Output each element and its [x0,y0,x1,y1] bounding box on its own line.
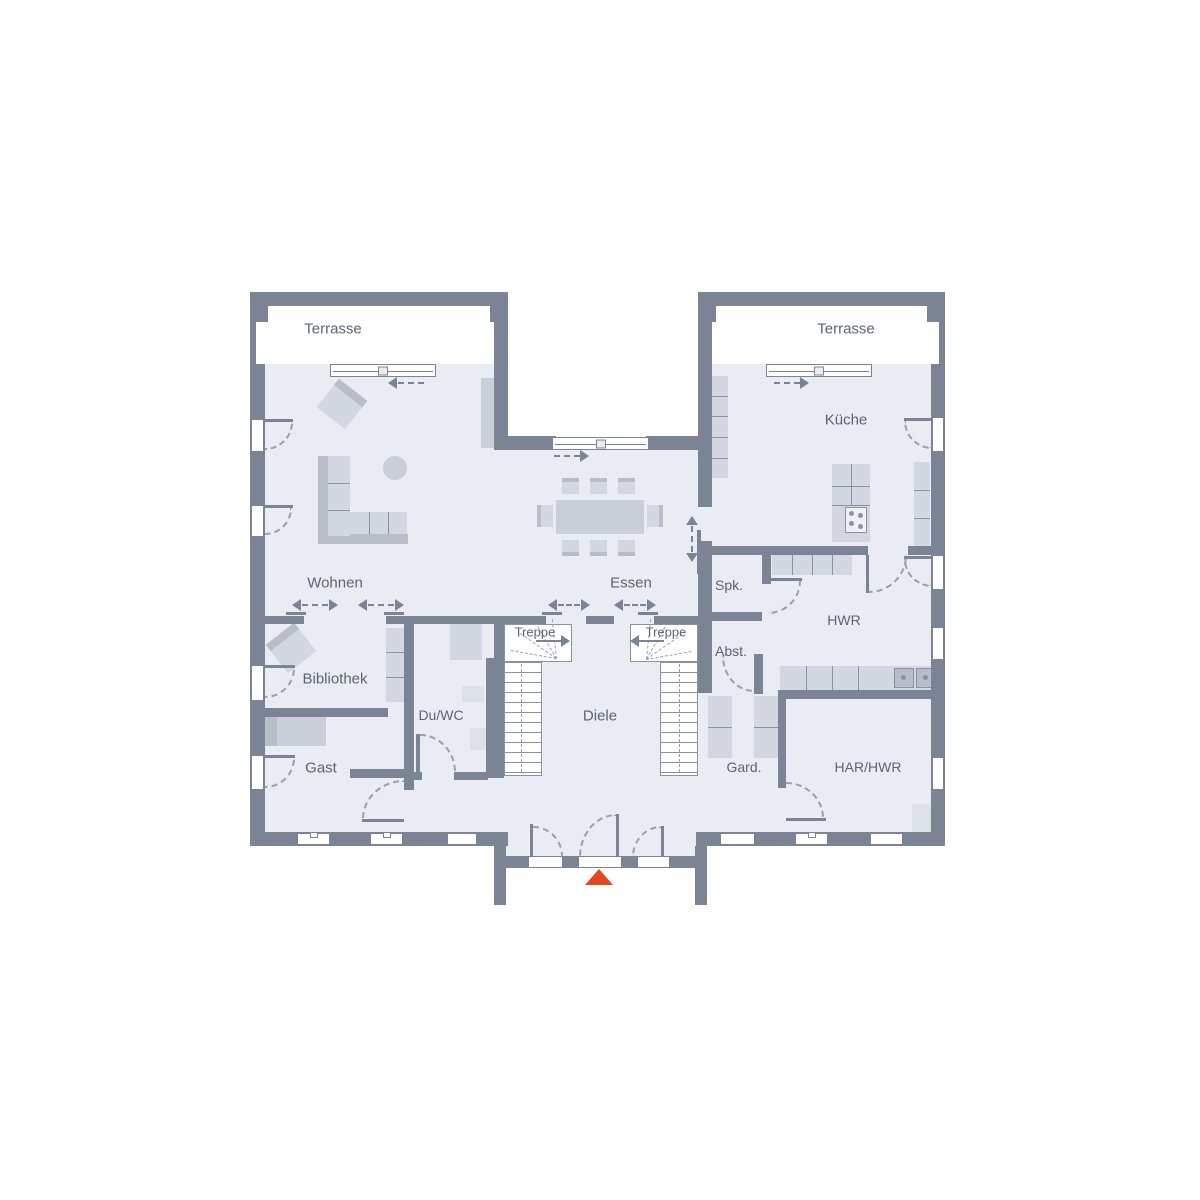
french-door [251,755,264,790]
entrance-marker-icon [585,869,613,885]
wall-porch [695,846,707,905]
sliding-door-leaf [638,612,658,615]
door-leaf [661,826,664,857]
cabinet-line [710,437,728,438]
room-label-living: Wohnen [307,575,363,592]
sofa [328,456,350,536]
sliding-door-arrow-icon [548,599,557,611]
exterior-door [932,417,944,452]
window [447,833,477,845]
sliding-door-dash [302,604,328,606]
stair-direction-line [536,640,562,642]
sliding-door-arrow-icon [292,599,301,611]
stair-direction-arrow-icon [630,635,639,647]
room-label-wardrobe: Gard. [726,759,761,775]
door-leaf [786,818,826,821]
sliding-door-arrow-icon [395,599,404,611]
slide-direction-dash [774,382,800,384]
wall-porch [494,846,506,905]
room-label-storage: Abst. [715,643,747,659]
chair [590,540,607,556]
slide-direction-dash [554,455,580,457]
window-vent-icon [808,832,816,838]
exterior-door [932,555,944,590]
bookshelf [386,628,404,702]
appliance-dot [901,675,906,680]
sofa-cushion-line [328,510,350,511]
sofa-backrest [318,456,328,544]
slide-direction-arrow-icon [580,450,589,462]
room-label-pantry: Spk. [715,577,743,593]
stair-direction-line [638,640,664,642]
burner-icon [858,513,863,518]
island-line [832,486,870,487]
wall [698,292,945,306]
sofa-cushion-line [369,512,370,534]
room-label-guest: Gast [305,760,337,777]
sliding-door-arrow-icon [647,599,656,611]
coffee-table [383,456,407,480]
chair [537,505,553,527]
entrance-door-main [578,856,622,868]
counter-line [812,555,813,575]
island-line [832,505,870,506]
chair [562,540,579,556]
wall [654,616,700,624]
wall [586,616,614,624]
cabinet-line [710,458,728,459]
wall [698,292,712,507]
french-door [251,665,264,701]
sliding-door-arrow-icon [329,599,338,611]
kitchen-cabinets [710,376,728,478]
room-label-dining: Essen [610,575,652,592]
slider-handle-icon [378,366,388,375]
burner-icon [858,524,863,529]
window-vent-icon [310,832,318,838]
appliance-dot [923,675,928,680]
sofa-cushion-line [388,512,389,534]
sliding-door-leaf [697,530,701,574]
room-label-stair-right: Treppe [646,625,687,640]
room-label-terrace-left: Terrasse [304,321,362,338]
room-label-kitchen: Küche [825,412,868,429]
door-leaf [362,819,404,822]
cabinet-line [708,727,732,728]
chair [647,505,663,527]
wall [252,616,304,624]
wall [250,292,256,368]
dining-table [556,500,644,534]
slider-handle-icon [814,366,824,375]
sliding-door-dash [691,526,693,552]
sliding-door-arrow-icon [614,599,623,611]
kitchen-tall-cabinet [914,462,930,546]
chair [618,478,635,494]
entrance-door [528,856,563,868]
window [720,833,755,845]
wall [778,690,786,788]
window [795,833,828,845]
chair [618,540,635,556]
sideboard [481,378,495,448]
island-line [851,464,852,506]
stair-walkline [521,664,522,772]
room-label-utility: HWR [827,612,860,628]
room-label-library: Bibliothek [302,671,367,688]
counter-line [832,555,833,575]
bath-cabinet [450,624,482,660]
washbasin [462,686,484,702]
counter-line [858,666,859,690]
stair-left-run [504,662,542,776]
wall [250,292,508,306]
sliding-terrace-door [330,364,436,377]
slide-direction-arrow-icon [388,377,397,389]
wall-entrance [563,856,578,868]
counter-line [792,555,793,575]
room-label-shower-wc: Du/WC [418,707,463,723]
wall [782,690,945,699]
cabinet-line [710,396,728,397]
cooktop [845,507,867,533]
shelf-line [386,677,404,678]
sliding-door-dash [624,604,646,606]
french-door [251,419,264,452]
window-vent-icon [383,832,391,838]
cabinet-line [710,416,728,417]
bed-pillow [264,716,277,746]
wall [350,769,404,778]
room-label-stair-left: Treppe [515,625,556,640]
wall-entrance [670,856,696,868]
wall [494,616,504,778]
stair-walkline [679,664,680,772]
sofa-cushion-line [328,483,350,484]
wall [939,292,945,368]
wall [404,616,414,790]
floor-plan: Terrasse Terrasse Wohnen Essen Küche Spk… [0,0,1200,1200]
slider-handle-icon [596,439,606,448]
wall [404,772,422,780]
sliding-terrace-door [552,437,649,450]
cabinet-line [914,518,930,519]
wall [494,292,508,448]
burner-icon [849,511,854,516]
window [297,833,330,845]
wall [700,612,762,621]
wall [908,546,931,555]
sliding-door-dash [368,604,394,606]
wall-entrance [622,856,637,868]
wall [252,708,388,717]
french-door [251,505,264,537]
sliding-door-leaf [384,612,404,615]
wall [754,654,763,694]
wall-entrance [505,856,528,868]
sliding-door-arrow-icon [686,516,698,525]
wall [712,546,868,555]
slide-direction-dash [398,382,424,384]
wall [454,772,488,780]
entrance-door [637,856,670,868]
window [932,627,944,660]
chair [562,478,579,494]
window [370,833,403,845]
cabinet-line [914,490,930,491]
room-label-terrace-right: Terrasse [817,321,875,338]
counter-line [832,666,833,690]
sliding-door-arrow-icon [581,599,590,611]
cabinet-line [754,727,780,728]
chair [590,478,607,494]
sliding-door-arrow-icon [358,599,367,611]
sliding-door-arrow-icon [686,553,698,562]
counter-line [806,666,807,690]
sliding-door-leaf [542,612,562,615]
door-leaf [616,814,619,857]
stair-direction-arrow-icon [561,635,570,647]
sliding-terrace-door [766,364,872,377]
shelf-line [386,652,404,653]
sliding-door-dash [558,604,580,606]
wall-pillar [698,292,716,322]
wall [494,436,556,450]
window [870,833,903,845]
slide-direction-arrow-icon [800,377,809,389]
room-label-hall: Diele [583,708,617,725]
burner-icon [849,521,854,526]
room-label-tech: HAR/HWR [835,759,902,775]
sofa [350,512,407,534]
window [932,757,944,790]
sliding-door-leaf [286,612,306,615]
